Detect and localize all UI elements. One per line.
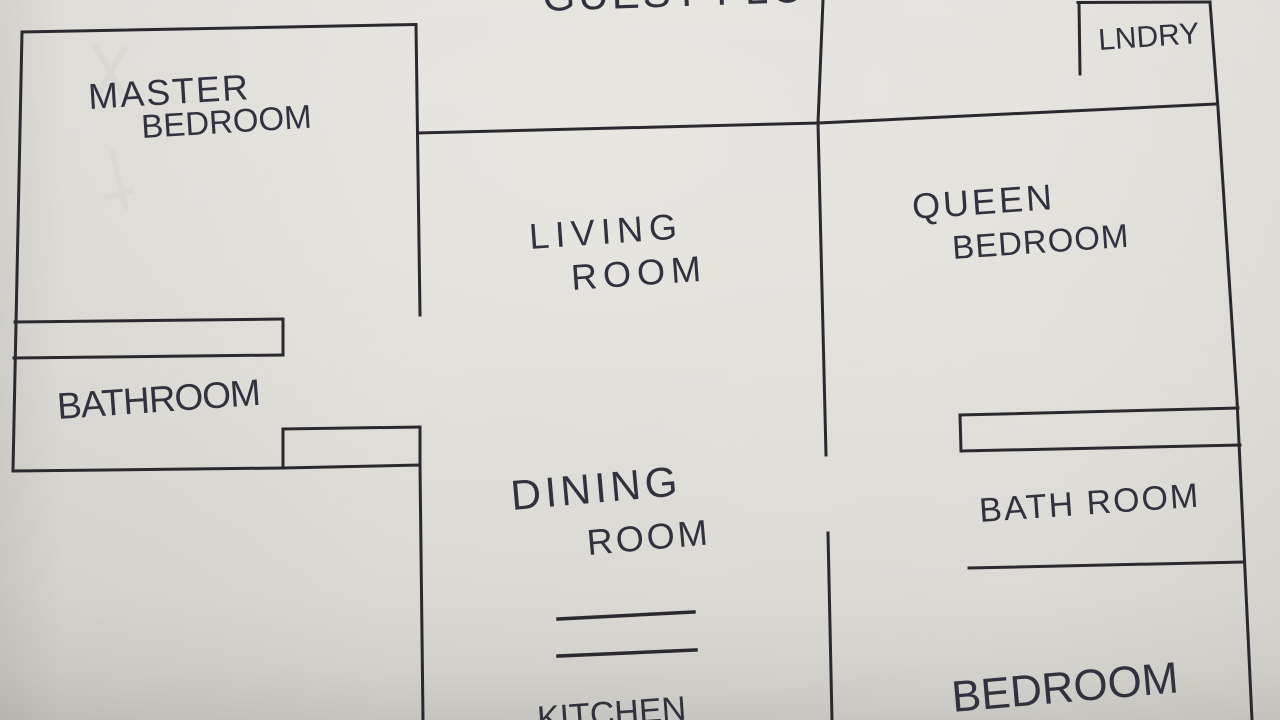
svg-text:LNDRY: LNDRY [1097, 17, 1200, 57]
